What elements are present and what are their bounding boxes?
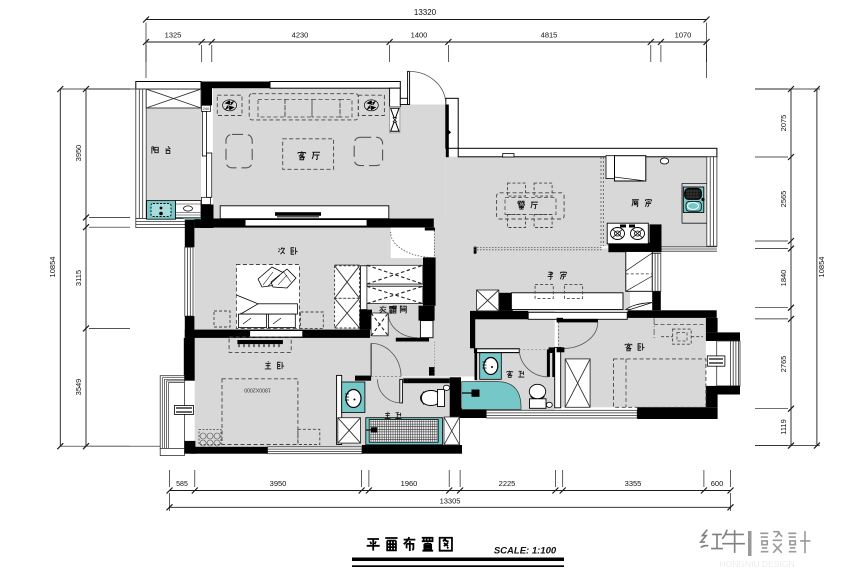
svg-text:3950: 3950: [270, 479, 287, 488]
svg-text:1960: 1960: [401, 479, 418, 488]
svg-text:3950: 3950: [74, 145, 83, 162]
svg-text:1400: 1400: [411, 31, 428, 40]
svg-text:2765: 2765: [779, 356, 788, 373]
svg-text:10854: 10854: [817, 257, 826, 278]
svg-text:4230: 4230: [292, 31, 309, 40]
svg-text:HONGNIU DESIGN: HONGNIU DESIGN: [719, 559, 794, 569]
svg-text:3549: 3549: [74, 379, 83, 396]
svg-text:2565: 2565: [779, 191, 788, 208]
svg-text:240: 240: [203, 106, 210, 111]
svg-text:SCALE: 1:100: SCALE: 1:100: [494, 546, 557, 557]
svg-text:585: 585: [176, 481, 188, 488]
svg-text:600: 600: [711, 479, 724, 488]
svg-text:1325: 1325: [165, 31, 182, 40]
svg-text:3115: 3115: [74, 270, 83, 286]
svg-text:1800X2000: 1800X2000: [244, 387, 271, 393]
svg-text:10854: 10854: [48, 257, 57, 278]
svg-text:1070: 1070: [675, 31, 692, 40]
svg-text:3355: 3355: [625, 479, 642, 488]
svg-text:13320: 13320: [414, 8, 437, 17]
svg-text:1840: 1840: [779, 270, 788, 287]
svg-text:2225: 2225: [499, 479, 516, 488]
svg-text:1119: 1119: [779, 419, 788, 435]
svg-text:13305: 13305: [440, 497, 461, 506]
svg-text:4815: 4815: [541, 31, 558, 40]
svg-text:2075: 2075: [779, 115, 788, 132]
